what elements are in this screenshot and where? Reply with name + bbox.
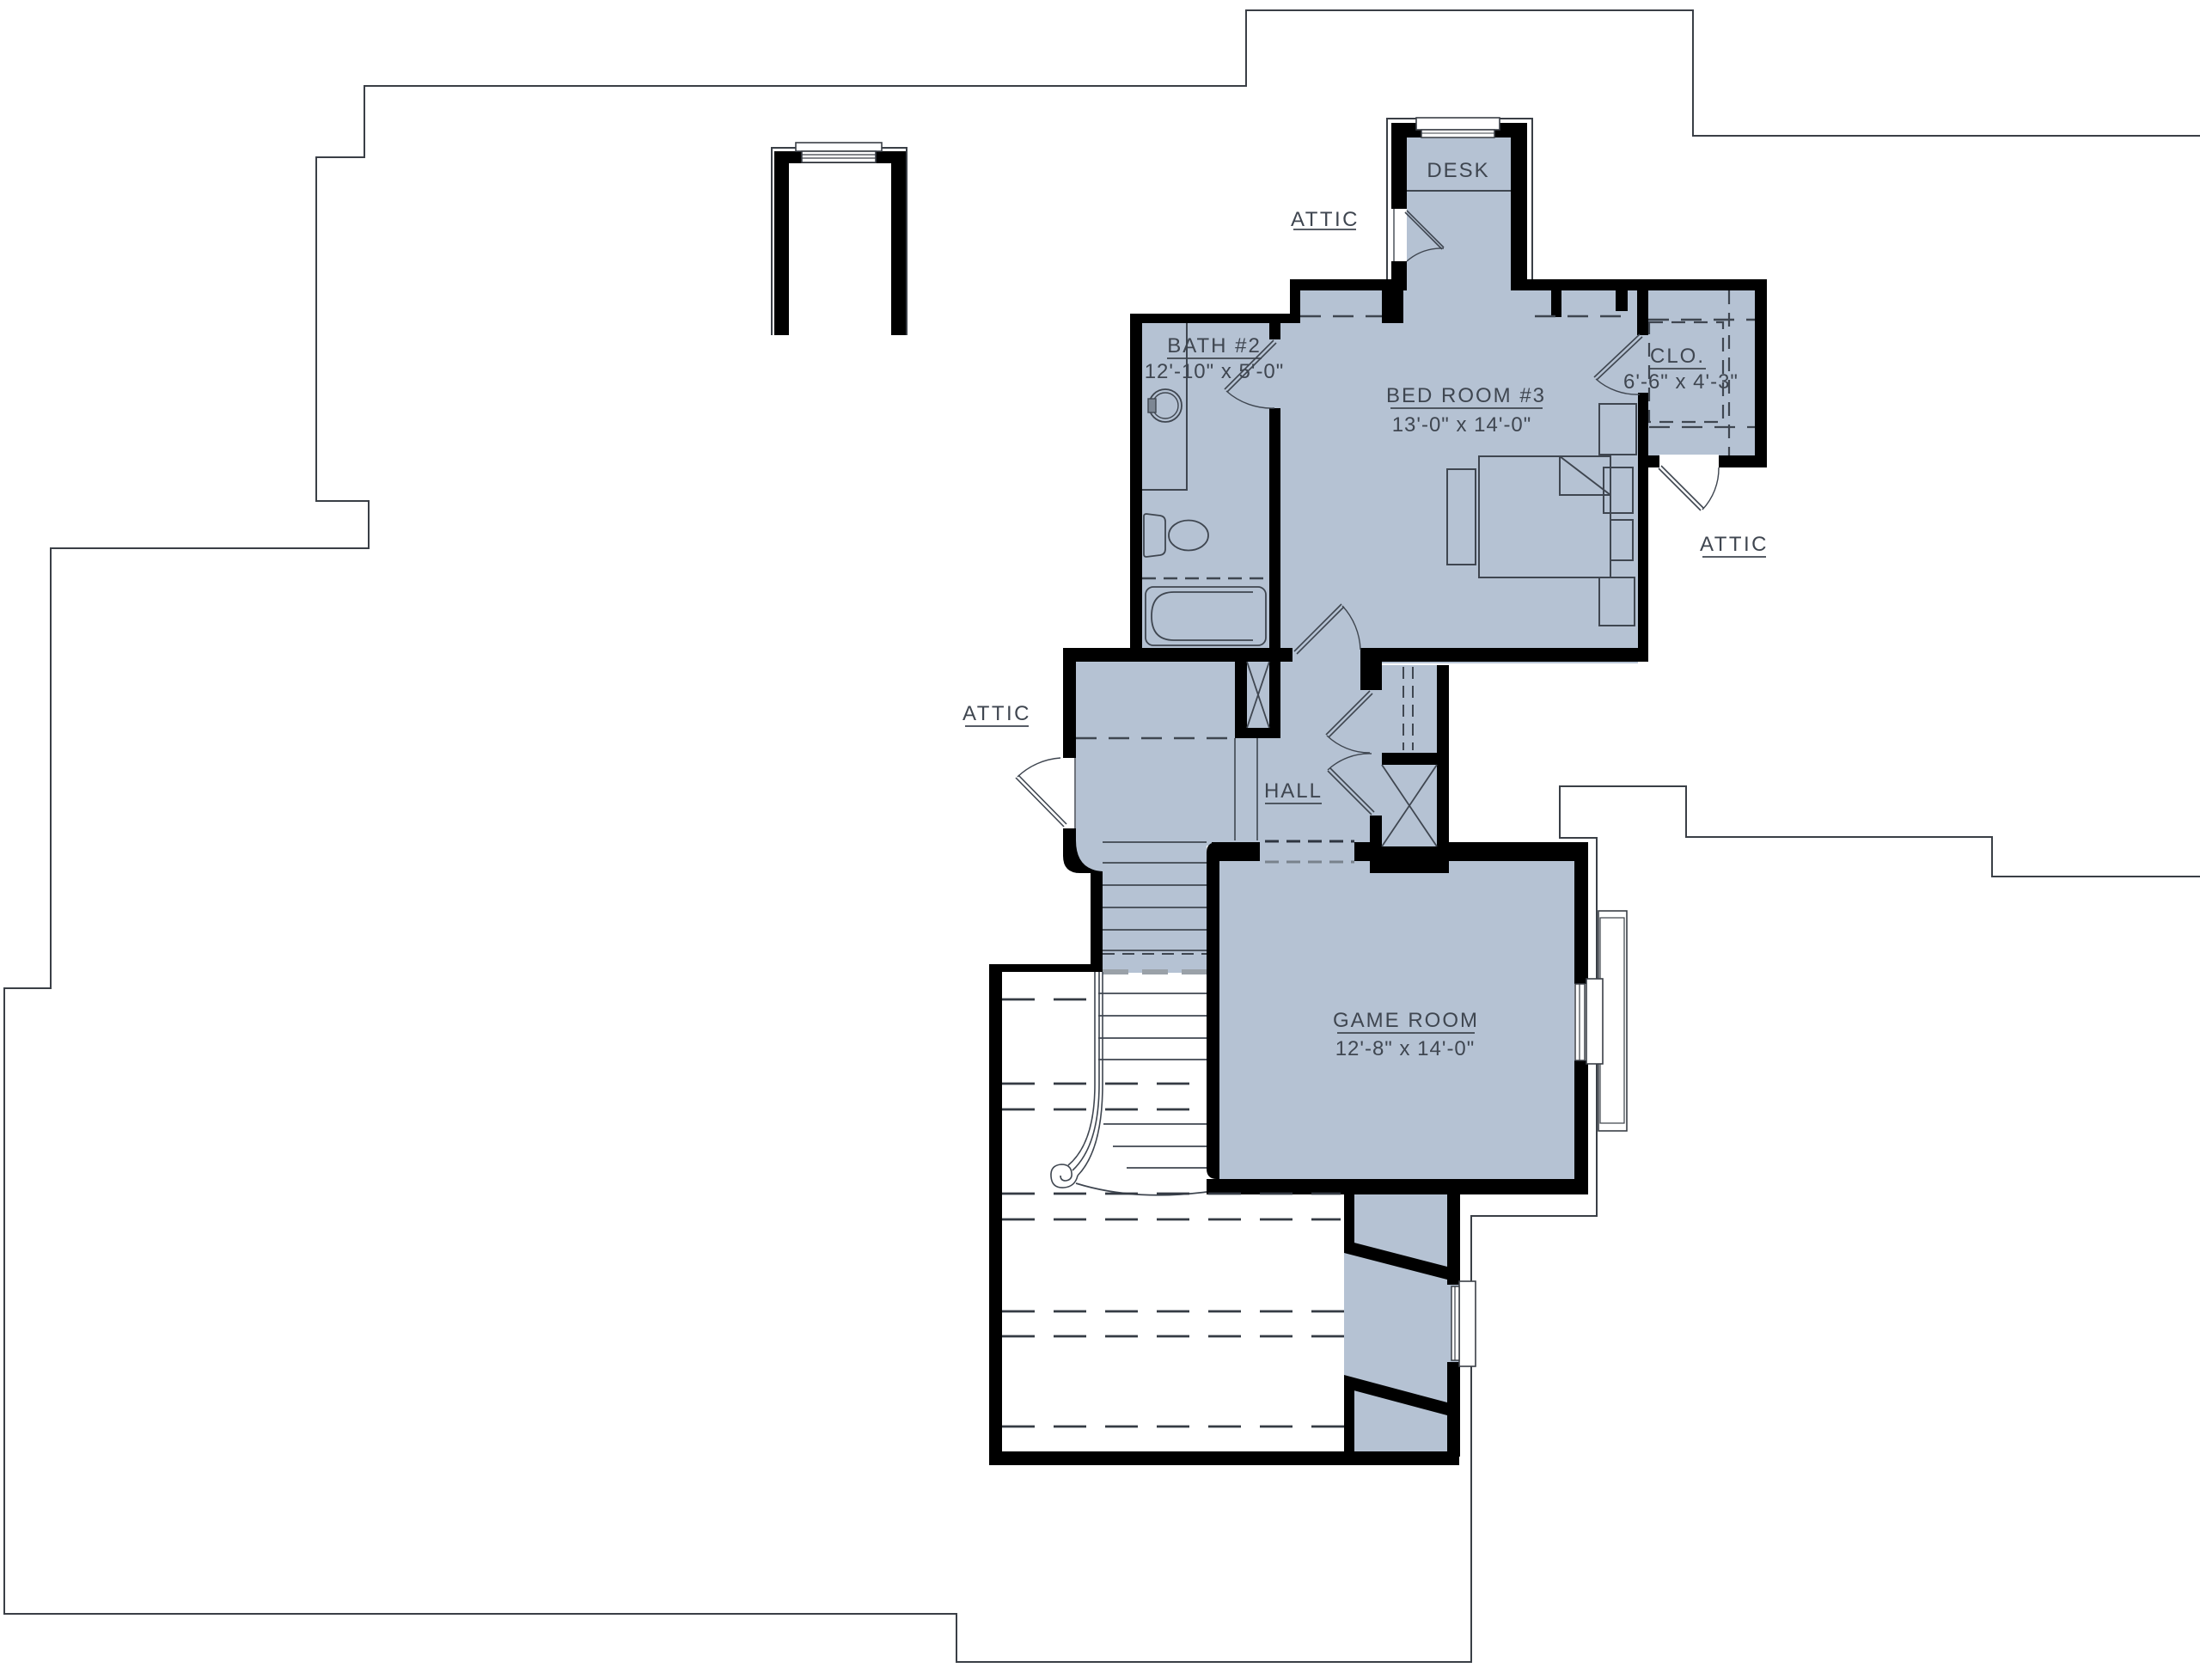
svg-text:ATTIC: ATTIC (1700, 533, 1769, 556)
svg-text:12'-10" x 5'-0": 12'-10" x 5'-0" (1145, 360, 1285, 383)
svg-text:6'-6" x 4'-3": 6'-6" x 4'-3" (1623, 370, 1739, 394)
svg-text:12'-8" x 14'-0": 12'-8" x 14'-0" (1335, 1037, 1476, 1060)
svg-text:GAME ROOM: GAME ROOM (1333, 1009, 1479, 1032)
svg-text:ATTIC: ATTIC (1291, 208, 1360, 231)
svg-text:ATTIC: ATTIC (962, 702, 1031, 725)
svg-text:BED ROOM #3: BED ROOM #3 (1386, 384, 1546, 407)
svg-text:13'-0" x 14'-0": 13'-0" x 14'-0" (1392, 413, 1532, 437)
svg-text:BATH #2: BATH #2 (1167, 334, 1262, 357)
svg-text:CLO.: CLO. (1650, 345, 1705, 368)
svg-text:HALL: HALL (1264, 779, 1323, 803)
svg-text:DESK: DESK (1427, 159, 1489, 182)
